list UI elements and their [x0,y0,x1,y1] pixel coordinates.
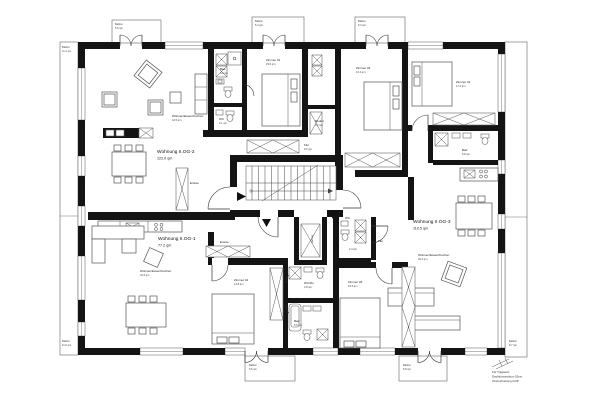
balcony-bottom2-name: Balkon [403,363,411,367]
north-arrow-sketch [492,358,513,369]
dining-table-og3 [456,196,492,236]
bed-og3-zimmer1 [412,62,452,106]
room-og3-bad-area: 5.8 qm [462,152,470,156]
room-og1-living-area: 32.6 qm [140,273,149,277]
balcony-top1-area: 5.6 qm [115,26,123,30]
room-og2-wc-area: 2.1 qm [219,121,227,125]
bed-og2-zimmer2 [364,82,402,130]
bed-og3-zimmer2 [340,298,380,348]
balcony-top3-area: 5.4 qm [358,23,366,27]
room-og2-zimmer2-area: 16.4 qm [356,70,365,74]
balcony-bottom2-area: 5.8 qm [403,367,411,371]
kitchen-og2 [103,128,153,138]
room-og1-wcdu-area: 3.8 qm [304,285,312,289]
apartment-og1-name: Wohnung II.OG-1 [158,236,196,242]
apartment-og1-area: 77.2 qm [158,244,171,248]
room-og3-zimmer2-name: Zimmer 02 [348,280,363,284]
balcony-bottom1-area: 5.6 qm [249,367,257,371]
balcony-top2-area: 5.4 qm [255,23,263,27]
room-og1-bad-name: Bad [294,319,300,323]
room-og2-bad-area: 6.2 qm [220,71,228,75]
balcony-left-lower-area: 11.0 qm [62,343,71,347]
balcony-top2-name: Balkon [255,19,263,23]
bed-og1-zimmer1 [212,294,254,344]
room-og3-flur-name: Flur [378,239,383,243]
bed-og2-zimmer1 [262,74,300,126]
room-og1-wcdu-name: WC/Du [304,281,314,285]
room-og3-wc-area: 2.4 qm [349,247,357,251]
room-og1-zimmer1-name: Zimmer 01 [234,278,249,282]
dining-table-og1 [126,296,166,334]
room-og3-living-name: Wohnen/Essen/Kochen [418,253,450,257]
apartment-og2-area: 122.0 qm [157,157,172,161]
room-og2-reduit-name: Reduit [315,119,324,123]
note-line-3: Überschreitung GOP [492,379,519,383]
balcony-left-upper-area: 11.2 qm [62,49,71,53]
kitchen-og3 [460,168,498,181]
room-og2-living-name: Wohnen/Essen/Kochen [172,114,204,118]
room-og2-zimmer2-name: Zimmer 02 [356,66,371,70]
note-line-2: Dachkonstruktion 55cm [492,375,523,379]
balcony-top1-name: Balkon [115,22,123,26]
room-og3-zimmer1-name: Zimmer 01 [456,80,471,84]
floor-plan-sheet: Wohnung II.OG-2 122.0 qm Wohnung II.OG-1… [0,0,600,400]
room-og2-bad-name: Bad [220,67,226,71]
room-og2-zimmer1-name: Zimmer 01 [266,58,281,62]
room-og3-zimmer2-area: 15.4 qm [348,284,357,288]
apartment-og2-name: Wohnung II.OG-2 [157,149,195,155]
room-og2-entree-name: Entrée [190,181,199,185]
balcony-left-lower-name: Balkon [62,339,70,343]
note-line-1: Für Tragwerk: [492,370,510,374]
room-og3-zimmer1-area: 17.2 qm [456,84,465,88]
sofa-group-og2 [102,60,207,115]
room-og2-wc-name: WC [219,117,225,121]
room-og2-reduit-area: 3.2 qm [315,123,323,127]
balcony-right-area: 9.7 qm [509,343,517,347]
balcony-top3-name: Balkon [358,19,366,23]
staircase [246,165,336,201]
room-og2-living-area: 42.5 qm [172,118,181,122]
room-og1-entree-name: Entrée [220,240,229,244]
room-og3-bad-name: Bad [462,148,468,152]
room-og1-bad-area: 5.6 qm [294,323,302,327]
floor-plan-drawing: Wohnung II.OG-2 122.0 qm Wohnung II.OG-1… [0,0,600,400]
room-og3-wc-name: WC [345,216,351,220]
apartment-og3-name: Wohnung II.OG-3 [413,219,451,225]
room-og1-zimmer1-area: 14.8 qm [234,282,243,286]
elevator-label: Aufzug [310,234,314,243]
apartment-og3-area: 110.5 qm [413,227,428,231]
room-og3-living-area: 40.2 qm [418,257,427,261]
dining-table-og2 [112,145,146,183]
balcony-left-upper-name: Balkon [62,45,70,49]
room-og2-flur-area: 9.6 qm [304,147,312,151]
balcony-right-name: Balkon [509,339,517,343]
room-og1-living-name: Wohnen/Essen/Kochen [140,269,172,273]
sofa-group-og3 [388,261,467,330]
room-og2-flur-name: Flur [304,143,309,147]
balcony-bottom1-name: Balkon [249,363,257,367]
room-og2-zimmer1-area: 15.6 qm [266,62,275,66]
